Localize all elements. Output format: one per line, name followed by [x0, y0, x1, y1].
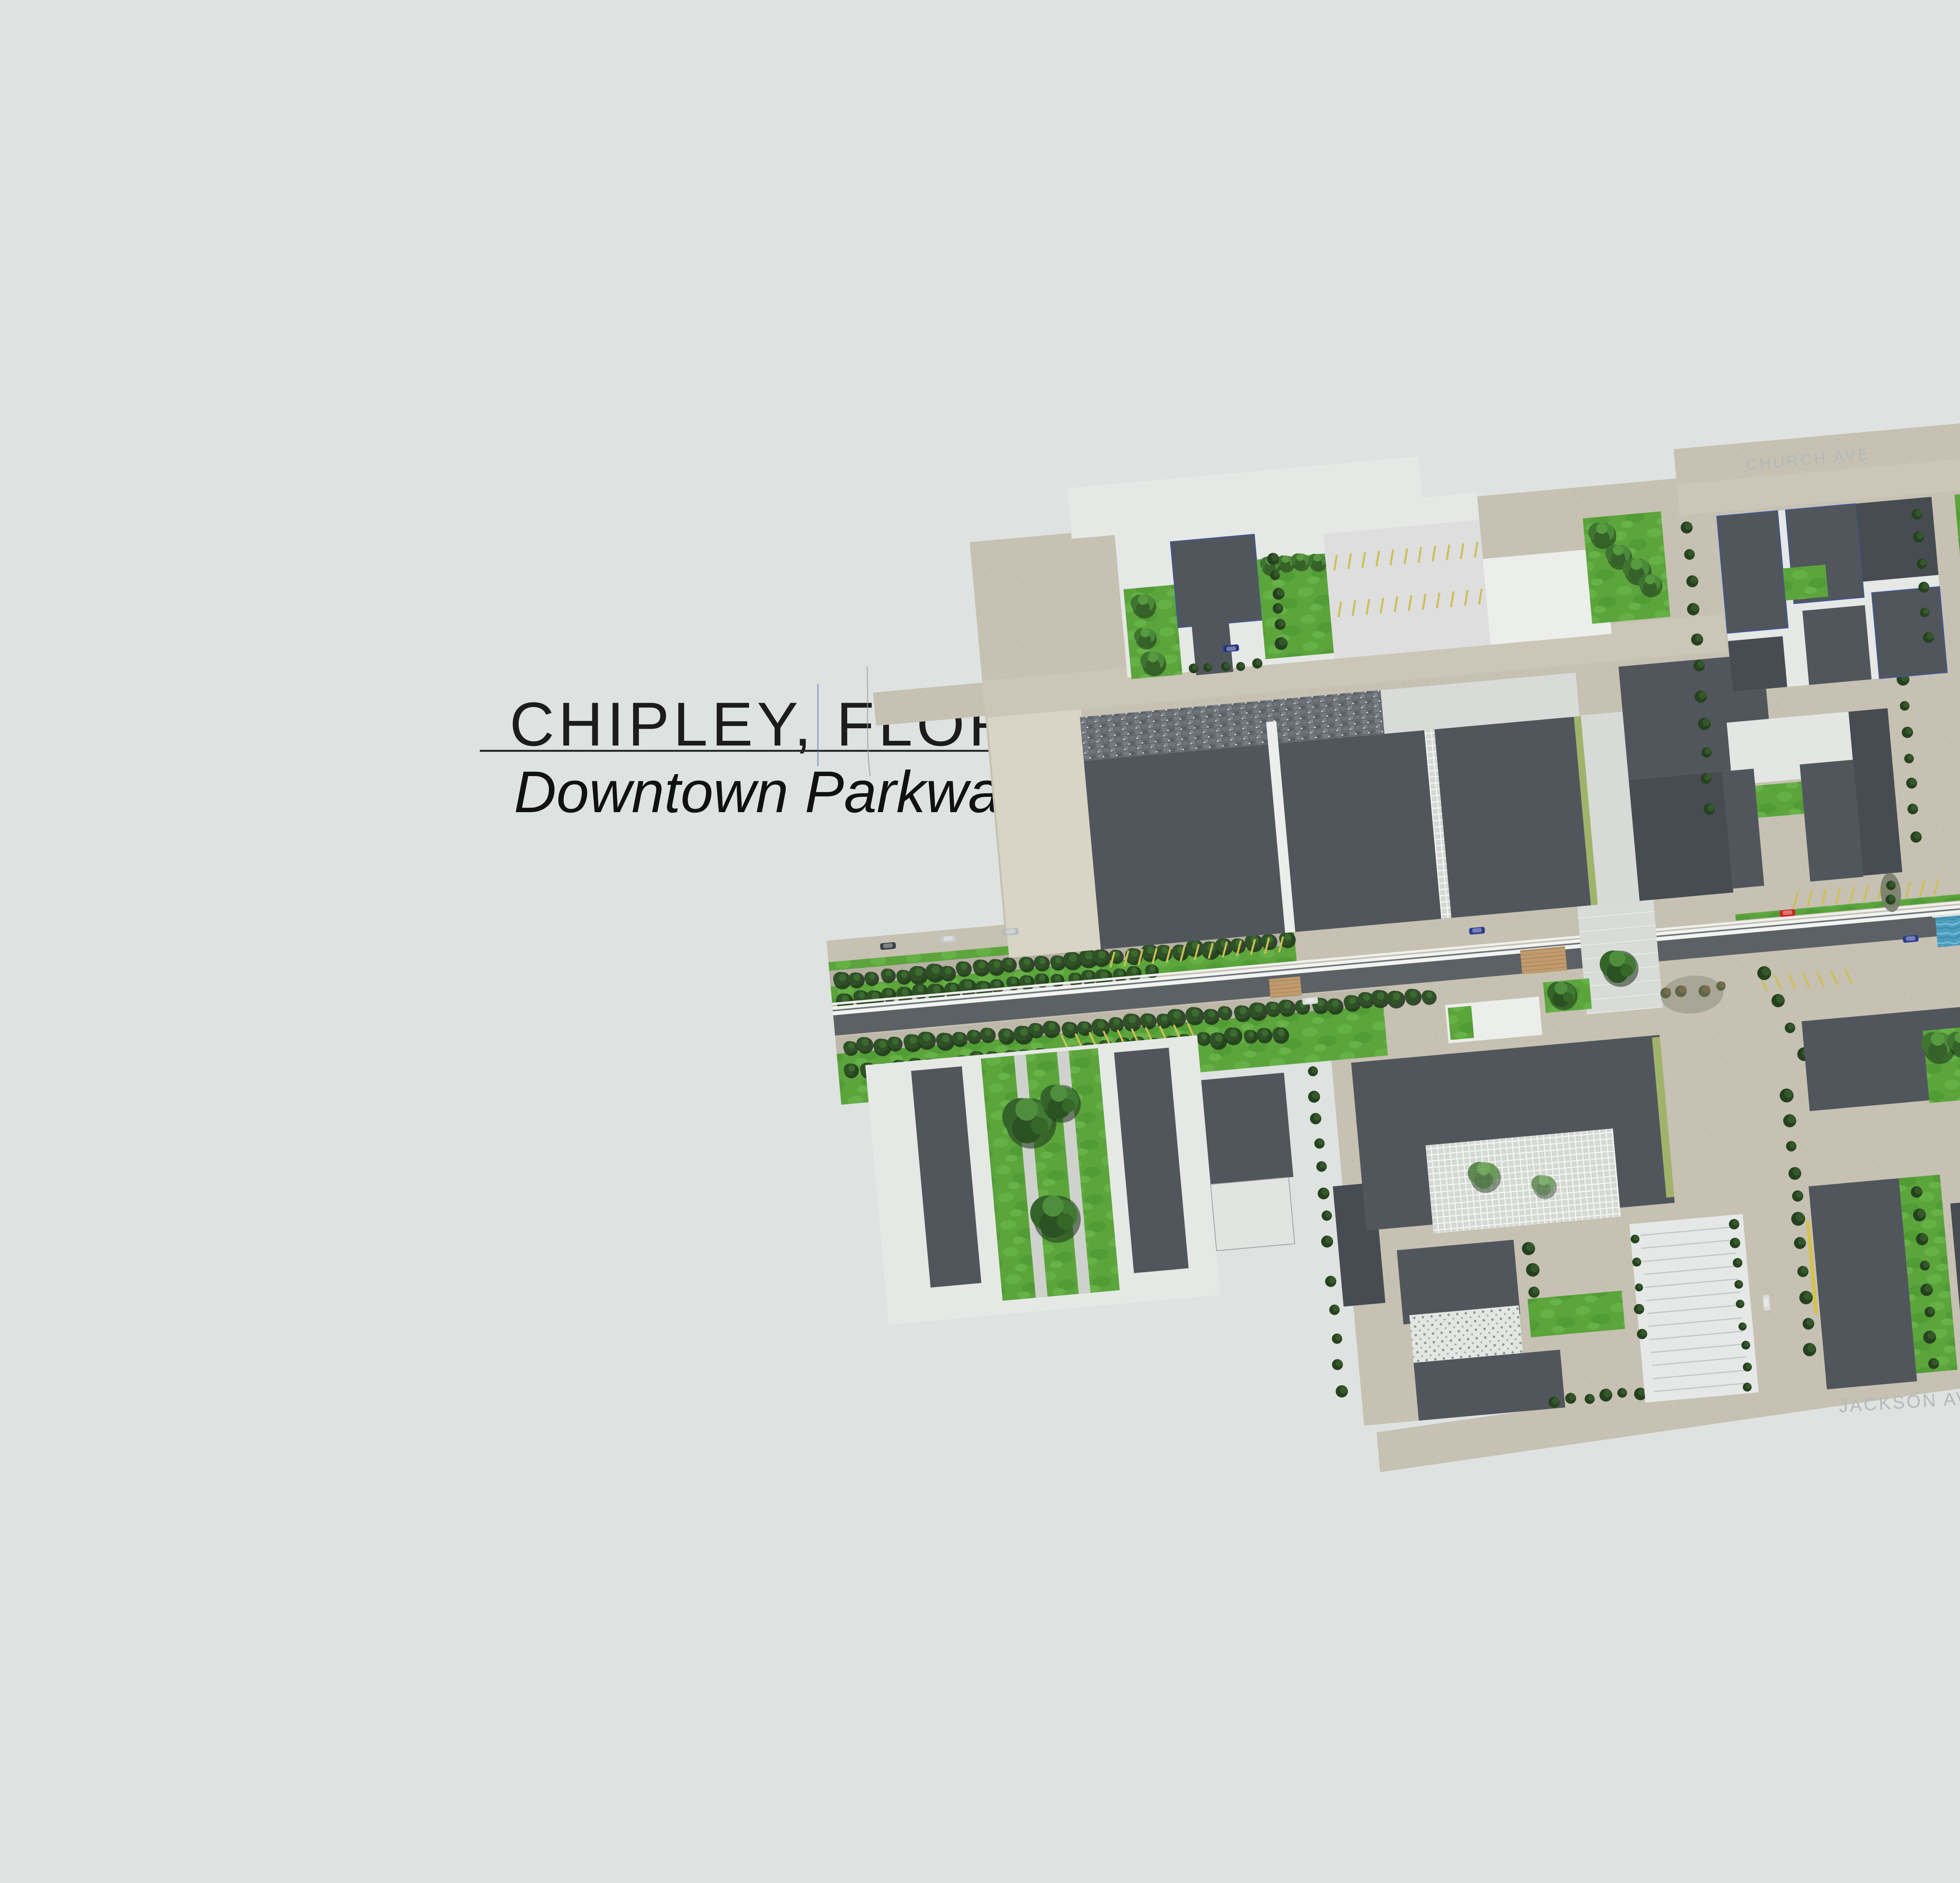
svg-text:Downtown Parkway: Downtown Parkway — [514, 759, 1033, 825]
